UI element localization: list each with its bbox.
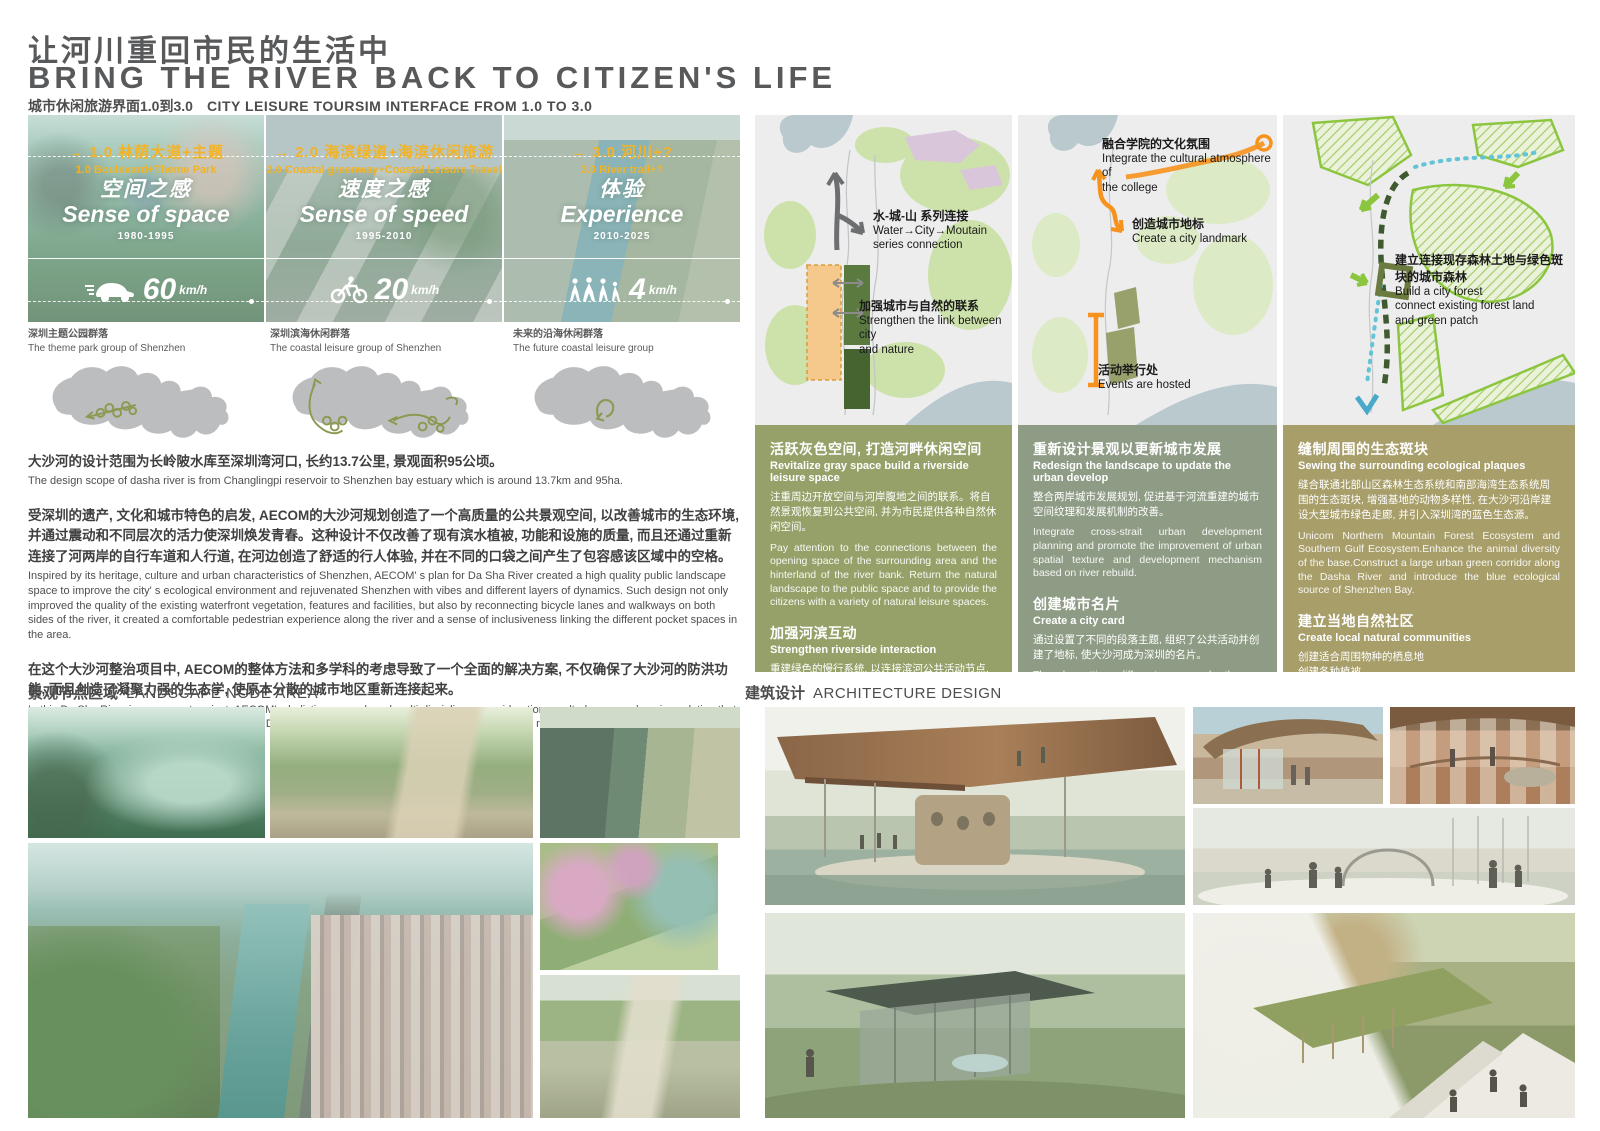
annotation-events-hosted: 活动举行处 Events are hosted	[1098, 361, 1191, 392]
era-1-tag: → 1.0 林荫大道+主题 1.0 Boulevard+Theme Park	[28, 141, 264, 176]
river-pavilion-render	[765, 707, 1185, 905]
arrow-right-icon: →	[68, 144, 84, 161]
annotation-water-city-mountain: 水-城-山 系列连接 Water→City→Moutain series con…	[873, 207, 987, 253]
subtitle-en: CITY LEISURE TOURSIM INTERFACE FROM 1.0 …	[207, 98, 593, 114]
strategy-section: 活跃灰色空间, 打造河畔休闲空间 Revitalize gray space b…	[770, 439, 997, 610]
diagram-water-city-mountain: 水-城-山 系列连接 Water→City→Moutain series con…	[755, 115, 1012, 425]
era-panel-1: → 1.0 林荫大道+主题 1.0 Boulevard+Theme Park 空…	[28, 115, 264, 322]
era-panel-3: → 3.0 河川+? 3.0 River trail+? 体验 Experien…	[504, 115, 740, 322]
annotation-strengthen-link: 加强城市与自然的联系 Strengthen the link between c…	[859, 297, 1012, 357]
map-caption-future: 未来的沿海休闲群落 The future coastal leisure gro…	[513, 328, 750, 355]
tree-walkway-render	[540, 975, 740, 1118]
presentation-board: { "header": { "title_zh": "让河川重回市民的生活中",…	[0, 0, 1600, 1131]
wetland-pond-render	[28, 707, 265, 838]
dome-deck-render	[1193, 808, 1575, 905]
era-2-tag-zh: 2.0 海滨绿道+海滨休闲旅游	[295, 144, 494, 161]
era-2-speed: 20km/h	[266, 273, 502, 307]
strategy-block-ecological-plaques: 缝制周围的生态斑块 Sewing the surrounding ecologi…	[1283, 425, 1575, 672]
strategy-block-riverside-leisure: 活跃灰色空间, 打造河畔休闲空间 Revitalize gray space b…	[755, 425, 1012, 672]
strategy-section: 创建城市名片 Create a city card 通过设置了不同的段落主题, …	[1033, 594, 1262, 672]
era-3-period: 2010-2025	[504, 231, 740, 242]
pedestrians-icon	[567, 276, 623, 304]
city-towers	[311, 915, 533, 1119]
arrow-right-icon: →	[274, 144, 290, 161]
blossom-park-render	[540, 843, 718, 970]
map-caption-coastal: 深圳滨海休闲群落 The coastal leisure group of Sh…	[270, 328, 507, 355]
annotation-college-culture: 融合学院的文化氛围 Integrate the cultural atmosph…	[1102, 135, 1277, 195]
architecture-section-header: 建筑设计ARCHITECTURE DESIGN	[745, 682, 1002, 703]
page-subtitle: 城市休闲旅游界面1.0到3.0CITY LEISURE TOURSIM INTE…	[28, 96, 592, 116]
arrow-right-icon: →	[571, 144, 587, 161]
curved-building-render	[1193, 707, 1383, 804]
era-1-period: 1980-1995	[28, 231, 264, 242]
canal-walk-render	[540, 707, 740, 838]
annotation-city-landmark: 创造城市地标 Create a city landmark	[1132, 215, 1247, 246]
subtitle-zh: 城市休闲旅游界面1.0到3.0	[28, 98, 193, 114]
strategy-section: 建立当地自然社区 Create local natural communitie…	[1298, 611, 1560, 672]
era-1-name: 空间之感 Sense of space 1980-1995	[28, 173, 264, 242]
water-city-mountain-arrow	[828, 173, 863, 250]
strategy-section: 重新设计景观以更新城市发展 Redesign the landscape to …	[1033, 439, 1262, 581]
car-icon	[85, 277, 137, 303]
era-2-period: 1995-2010	[266, 231, 502, 242]
green-roof-center-render	[1193, 913, 1575, 1118]
forest-path-render	[270, 707, 533, 838]
era-2-tag: → 2.0 海滨绿道+海滨休闲旅游 2.0 Coastal greenway+C…	[266, 141, 502, 176]
strategy-block-urban-update: 重新设计景观以更新城市发展 Redesign the landscape to …	[1018, 425, 1277, 672]
landscape-section-header: 景观节点区域LANDSCAPE NODE AREA	[28, 682, 318, 703]
page-title-en: BRING THE RIVER BACK TO CITIZEN'S LIFE	[28, 60, 836, 96]
intro-paragraph-2: 受深圳的遗产, 文化和城市特色的启发, AECOM的大沙河规划创造了一个高质量的…	[28, 506, 742, 643]
era-2-name: 速度之感 Sense of speed 1995-2010	[266, 173, 502, 242]
map-caption-theme-park: 深圳主题公园群落 The theme park group of Shenzhe…	[28, 328, 265, 355]
era-3-name: 体验 Experience 2010-2025	[504, 173, 740, 242]
era-3-tag: → 3.0 河川+? 3.0 River trail+?	[504, 141, 740, 176]
river-channel	[216, 904, 310, 1119]
era-3-tag-zh: 3.0 河川+?	[592, 144, 673, 161]
annotation-city-forest: 建立连接现存森林土地与绿色斑块的城市森林 Build a city forest…	[1395, 251, 1563, 328]
era-1-speed: 60km/h	[28, 273, 264, 307]
diagram-city-forest: 建立连接现存森林土地与绿色斑块的城市森林 Build a city forest…	[1283, 115, 1575, 425]
era-1-tag-zh: 1.0 林荫大道+主题	[89, 144, 224, 161]
intro-paragraph-1: 大沙河的设计范围为长岭陂水库至深圳湾河口, 长约13.7公里, 景观面积95公顷…	[28, 452, 742, 489]
era-3-speed: 4km/h	[504, 273, 740, 307]
glass-pavilion-render	[765, 913, 1185, 1118]
shenzhen-silhouette-map-1	[38, 356, 253, 454]
blue-source-arrow	[1357, 395, 1377, 411]
diagram-city-landmark: 融合学院的文化氛围 Integrate the cultural atmosph…	[1018, 115, 1277, 425]
era-photo-strip: → 1.0 林荫大道+主题 1.0 Boulevard+Theme Park 空…	[28, 115, 740, 322]
strategy-section: 缝制周围的生态斑块 Sewing the surrounding ecologi…	[1298, 439, 1560, 598]
era-panel-2: → 2.0 海滨绿道+海滨休闲旅游 2.0 Coastal greenway+C…	[266, 115, 502, 322]
bicycle-icon	[329, 276, 369, 304]
aerial-river-city-photo	[28, 843, 533, 1118]
strategy-section: 加强河滨互动 Strengthen riverside interaction …	[770, 623, 997, 672]
shenzhen-silhouette-map-3	[520, 356, 735, 454]
shenzhen-silhouette-map-2	[278, 356, 493, 454]
interior-balcony-render	[1390, 707, 1575, 804]
